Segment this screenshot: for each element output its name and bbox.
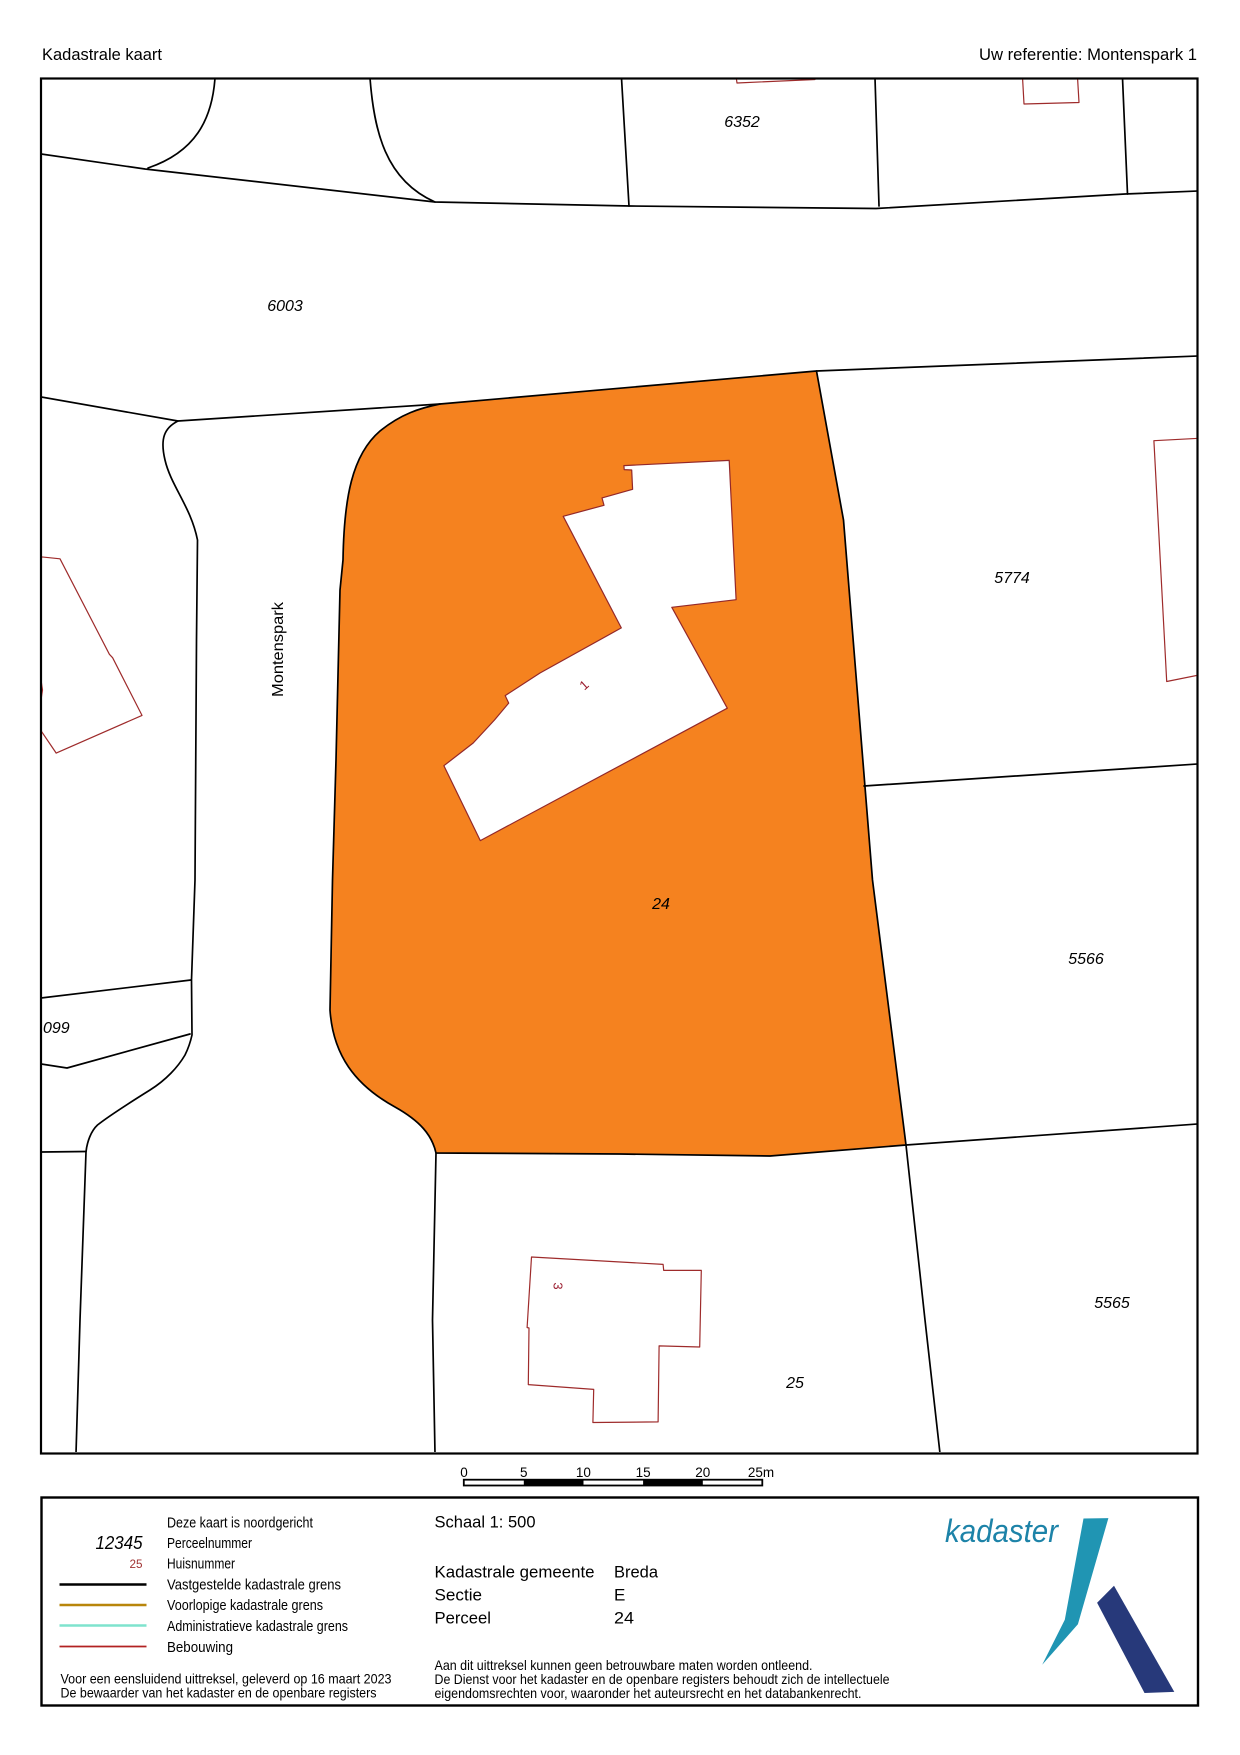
svg-text:Huisnummer: Huisnummer (167, 1556, 235, 1573)
svg-text:kadaster: kadaster (945, 1513, 1059, 1549)
svg-text:Perceel: Perceel (435, 1609, 492, 1628)
svg-text:Perceelnummer: Perceelnummer (167, 1535, 252, 1552)
svg-text:Vastgestelde kadastrale grens: Vastgestelde kadastrale grens (167, 1577, 341, 1594)
svg-text:Montenspark: Montenspark (270, 601, 287, 697)
svg-text:Sectie: Sectie (435, 1586, 483, 1605)
svg-text:25m: 25m (748, 1465, 774, 1480)
svg-text:Schaal 1: 500: Schaal 1: 500 (435, 1513, 536, 1532)
svg-text:Deze kaart is noordgericht: Deze kaart is noordgericht (167, 1515, 314, 1532)
svg-text:099: 099 (43, 1020, 70, 1037)
svg-text:25: 25 (130, 1557, 143, 1571)
svg-text:24: 24 (651, 896, 670, 913)
svg-text:Uw referentie: Montenspark 1: Uw referentie: Montenspark 1 (979, 45, 1197, 64)
svg-text:5774: 5774 (994, 570, 1030, 587)
svg-text:0: 0 (460, 1465, 468, 1480)
svg-text:6352: 6352 (724, 114, 760, 131)
svg-text:eigendomsrechten voor, waarond: eigendomsrechten voor, waaronder het aut… (435, 1685, 862, 1701)
svg-text:12345: 12345 (96, 1533, 144, 1553)
svg-text:Voorlopige kadastrale grens: Voorlopige kadastrale grens (167, 1597, 323, 1614)
svg-text:6003: 6003 (267, 298, 303, 315)
svg-text:Kadastrale kaart: Kadastrale kaart (42, 45, 162, 64)
svg-text:5565: 5565 (1094, 1295, 1130, 1312)
svg-text:25: 25 (785, 1375, 804, 1392)
svg-text:Breda: Breda (614, 1563, 659, 1582)
svg-text:Kadastrale gemeente: Kadastrale gemeente (435, 1563, 595, 1582)
svg-text:5: 5 (520, 1465, 528, 1480)
svg-text:De bewaarder van het kadaster: De bewaarder van het kadaster en de open… (61, 1685, 377, 1701)
svg-text:Bebouwing: Bebouwing (167, 1639, 233, 1656)
svg-text:3: 3 (551, 1282, 566, 1289)
svg-text:24: 24 (614, 1609, 634, 1628)
svg-text:20: 20 (695, 1465, 710, 1480)
svg-text:E: E (614, 1586, 625, 1605)
svg-text:5566: 5566 (1068, 951, 1104, 968)
svg-text:10: 10 (576, 1465, 591, 1480)
svg-text:Administratieve kadastrale gre: Administratieve kadastrale grens (167, 1618, 348, 1635)
svg-text:15: 15 (636, 1465, 651, 1480)
